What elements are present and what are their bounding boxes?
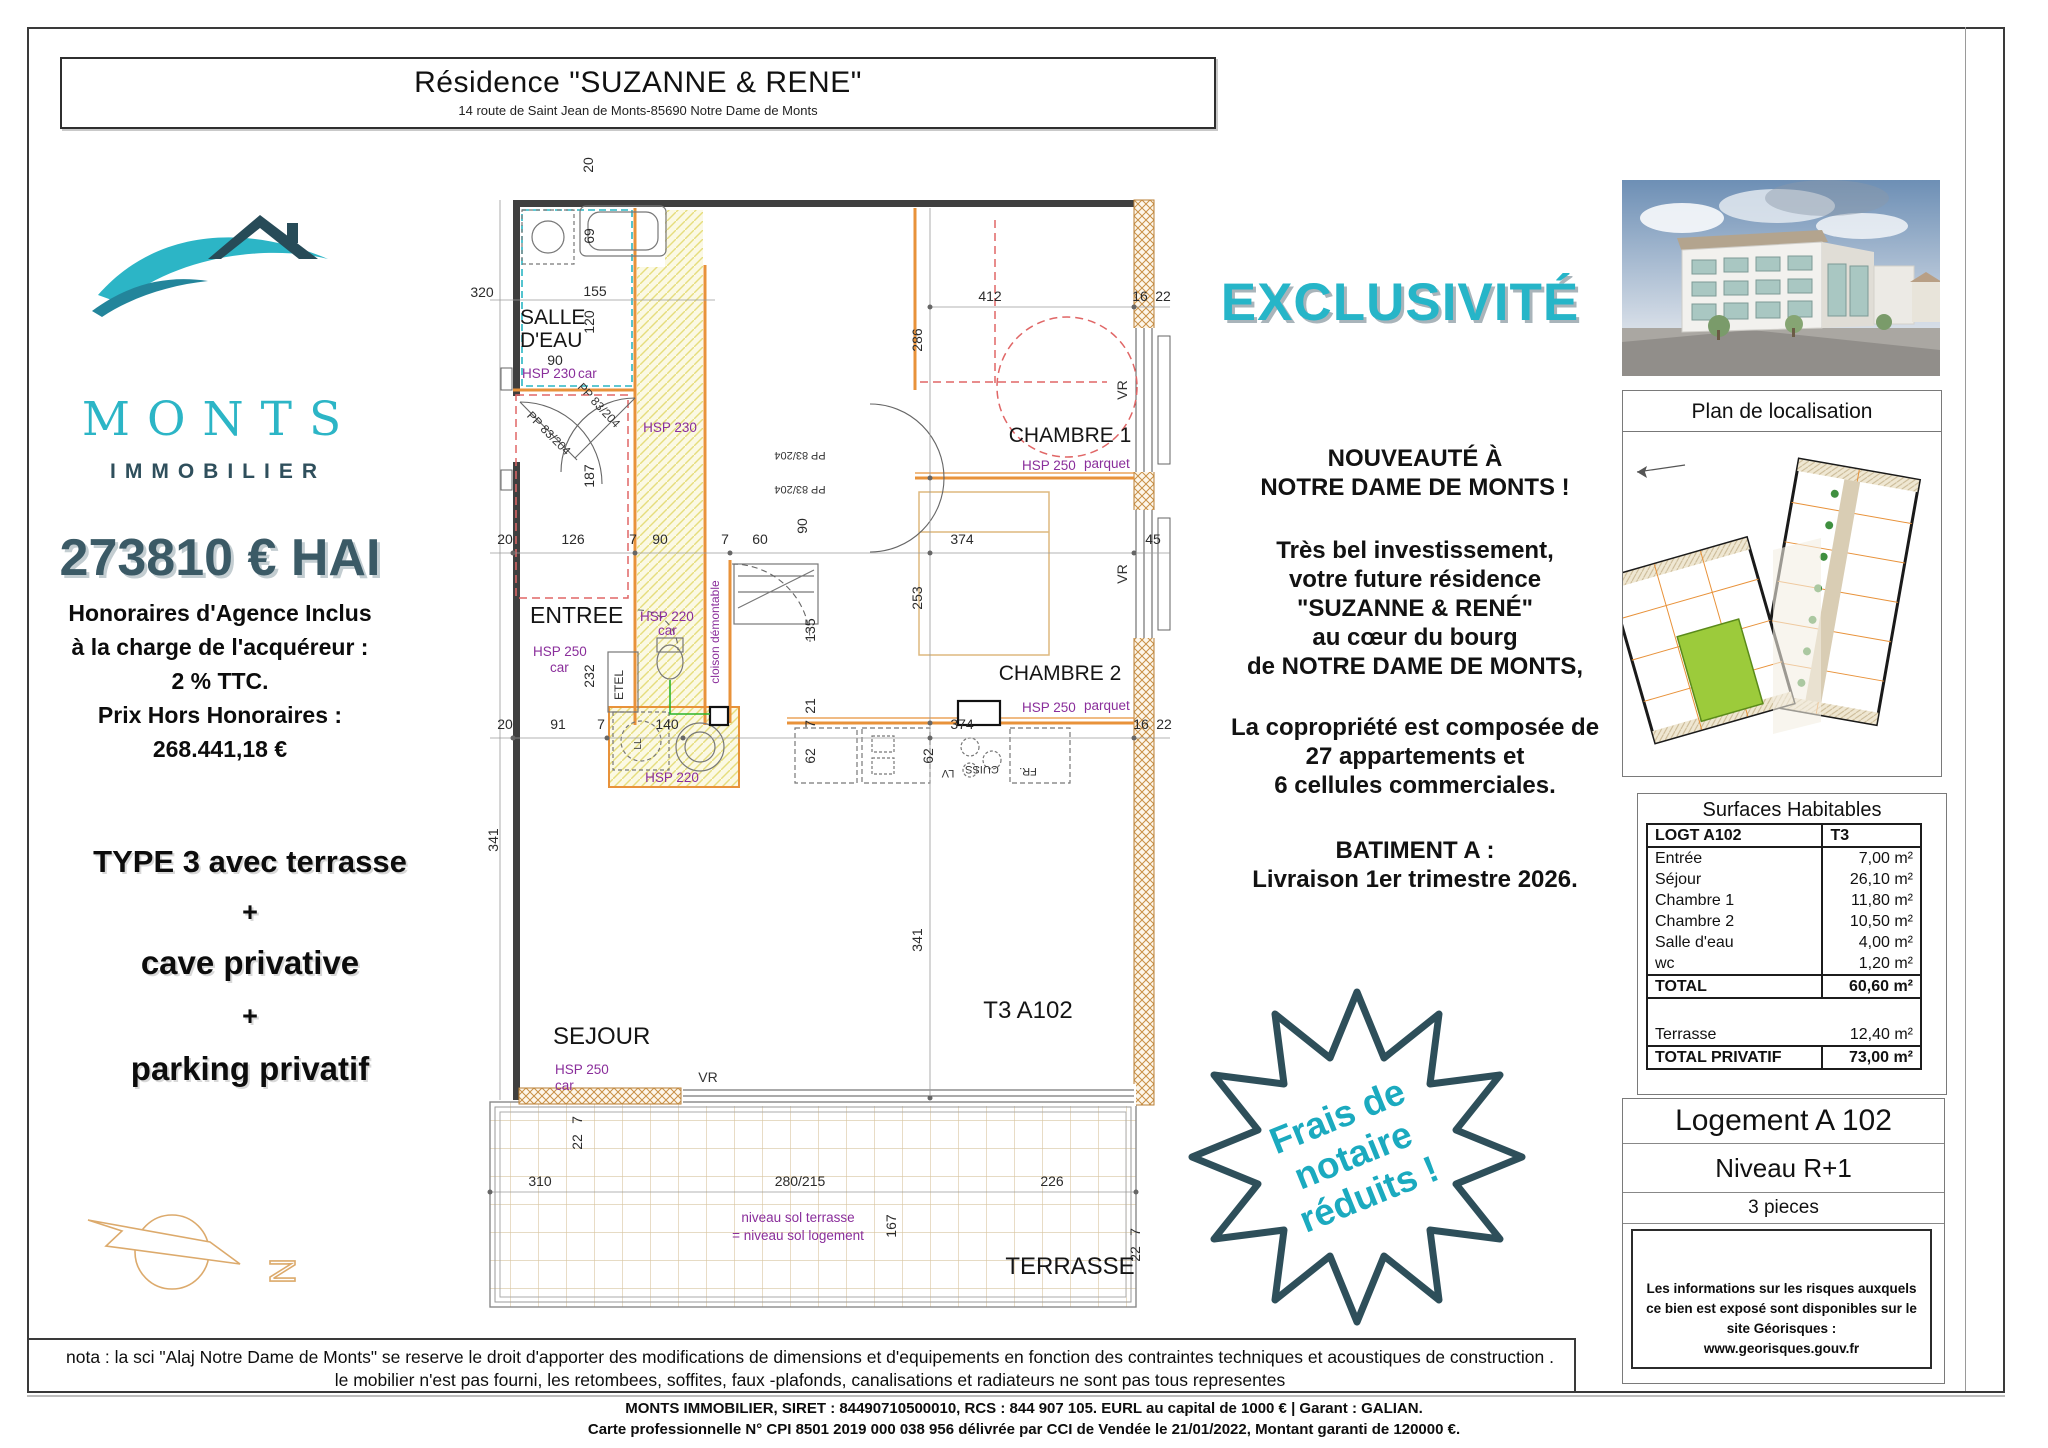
dim: 140 xyxy=(655,716,679,732)
risk-line: www.georisques.gouv.fr xyxy=(1633,1339,1930,1359)
surfaces-title: Surfaces Habitables xyxy=(1638,794,1946,822)
site-building-left xyxy=(1623,538,1794,743)
pricing-line: à la charge de l'acquéreur : xyxy=(35,634,405,661)
hsp-label: car xyxy=(555,1078,574,1093)
room-cell: Chambre 2 xyxy=(1647,911,1822,932)
promo-line: "SUZANNE & RENÉ" xyxy=(1195,594,1635,623)
promo-paragraph-3: La copropriété est composée de 27 appart… xyxy=(1195,713,1635,800)
promo-line: 6 cellules commerciales. xyxy=(1195,771,1635,800)
price: 273810 € HAI xyxy=(30,528,410,588)
compass-arrow-icon xyxy=(88,1220,240,1264)
dim: 21 xyxy=(802,698,818,714)
dim: 7 xyxy=(802,720,818,728)
unit-label: T3 A102 xyxy=(983,997,1072,1024)
dim: 91 xyxy=(550,716,566,732)
area-cell: 7,00 m² xyxy=(1822,847,1921,869)
dim: 320 xyxy=(470,284,494,300)
promo-line: 27 appartements et xyxy=(1195,742,1635,771)
promo-line: NOTRE DAME DE MONTS ! xyxy=(1195,473,1635,502)
dim: 22 xyxy=(1156,716,1172,732)
area-cell: 60,60 m² xyxy=(1822,975,1921,998)
promo-line: La copropriété est composée de xyxy=(1195,713,1635,742)
dim: 126 xyxy=(561,531,585,547)
hsp-label: HSP 230 xyxy=(643,420,697,435)
notary-badge: Frais de notaire réduits ! xyxy=(1185,985,1535,1335)
area-cell: 73,00 m² xyxy=(1822,1046,1921,1069)
dim: 22 xyxy=(569,1134,585,1150)
table-total-row: TOTAL 60,60 m² xyxy=(1647,975,1921,998)
brand-subtitle: IMMOBILIER xyxy=(55,460,375,484)
surfaces-table: LOGT A102 T3 Entrée 7,00 m² Séjour 26,10… xyxy=(1646,823,1922,1070)
col-header: T3 xyxy=(1822,824,1921,847)
area-cell: 11,80 m² xyxy=(1822,890,1921,911)
table-total-privatif-row: TOTAL PRIVATIF 73,00 m² xyxy=(1647,1046,1921,1069)
dim: 20 xyxy=(497,531,513,547)
door-label: PP 83/204 xyxy=(575,380,624,431)
promo-line: votre future résidence xyxy=(1195,565,1635,594)
table-row: Terrasse 12,40 m² xyxy=(1647,1024,1921,1046)
dim: 20 xyxy=(580,157,596,173)
area-cell: 10,50 m² xyxy=(1822,911,1921,932)
room-cell: wc xyxy=(1647,953,1822,975)
dim: 374 xyxy=(950,531,974,547)
lv-label: LV xyxy=(941,767,954,779)
room-label-salle-deau: D'EAU xyxy=(520,329,582,352)
dim: 226 xyxy=(1040,1173,1064,1189)
promo-line: Livraison 1er trimestre 2026. xyxy=(1195,865,1635,894)
pricing-line: Prix Hors Honoraires : xyxy=(35,702,405,729)
localisation-title: Plan de localisation xyxy=(1623,391,1941,432)
risk-line: ce bien est exposé sont disponibles sur … xyxy=(1633,1299,1930,1339)
vr-label: VR xyxy=(698,1069,717,1085)
nota-text: nota : la sci "Alaj Notre Dame de Monts"… xyxy=(50,1346,1570,1392)
company-info: MONTS IMMOBILIER, SIRET : 84490710500010… xyxy=(0,1400,2048,1417)
brand-name: MONTS xyxy=(55,392,375,447)
hsp-label: HSP 250 xyxy=(1022,700,1076,715)
table-spacer-row xyxy=(1647,998,1921,1024)
room-label-salle-deau: SALLE xyxy=(520,306,585,329)
hsp-label: car xyxy=(658,623,677,638)
hsp-label: parquet xyxy=(1084,456,1130,471)
table-header-row: LOGT A102 T3 xyxy=(1647,824,1921,847)
hsp-label: car xyxy=(578,366,597,381)
door-label: PP 83/204 xyxy=(774,483,825,495)
dim: 341 xyxy=(909,928,925,952)
table-row: Séjour 26,10 m² xyxy=(1647,869,1921,890)
room-cell: Séjour xyxy=(1647,869,1822,890)
dim: 60 xyxy=(752,531,768,547)
vr-label: VR xyxy=(1114,564,1130,583)
localisation-box: Plan de localisation xyxy=(1622,390,1942,777)
dim: 286 xyxy=(909,328,925,352)
promo-line: BATIMENT A : xyxy=(1195,836,1635,865)
risk-line: Les informations sur les risques auxquel… xyxy=(1633,1279,1930,1299)
page-border-right xyxy=(2003,27,2005,1393)
residence-address: 14 route de Saint Jean de Monts-85690 No… xyxy=(62,103,1214,118)
hsp-label: parquet xyxy=(1084,698,1130,713)
dim: 7 xyxy=(569,1116,585,1124)
page-border-left xyxy=(27,27,29,1393)
dim: 7 xyxy=(721,531,729,547)
dim: 16 xyxy=(1132,288,1148,304)
dim: 16 xyxy=(1133,716,1149,732)
pricing-line: 268.441,18 € xyxy=(35,736,405,763)
shower-zone xyxy=(522,210,632,386)
building-photo xyxy=(1622,180,1940,376)
nota-right-rule xyxy=(1574,1338,1576,1391)
dim: 7 xyxy=(629,531,637,547)
room-label-chambre1: CHAMBRE 1 xyxy=(1009,424,1132,447)
table-row: Salle d'eau 4,00 m² xyxy=(1647,932,1921,953)
north-compass: N xyxy=(80,1200,330,1310)
dim: 45 xyxy=(1145,531,1161,547)
room-cell: Salle d'eau xyxy=(1647,932,1822,953)
room-label-sejour: SEJOUR xyxy=(553,1023,650,1050)
fr-label: FR. xyxy=(1019,765,1037,777)
hsp-label: HSP 250 xyxy=(1022,458,1076,473)
area-cell: 26,10 m² xyxy=(1822,869,1921,890)
hsp-label: car xyxy=(550,660,569,675)
exclusivity-banner: EXCLUSIVITÉ xyxy=(1190,272,1610,333)
cuiss-label: CUISS xyxy=(965,763,999,775)
promo-line: au cœur du bourg xyxy=(1195,623,1635,652)
dim: 90 xyxy=(652,531,668,547)
flyer-page: Résidence "SUZANNE & RENE" 14 route de S… xyxy=(0,0,2048,1448)
cloison-label: cloison démontable xyxy=(708,580,722,684)
table-row: Chambre 1 11,80 m² xyxy=(1647,890,1921,911)
compass-n-label: N xyxy=(262,1258,303,1284)
unit-box: Logement A 102 Niveau R+1 3 pieces Les i… xyxy=(1622,1098,1945,1384)
dim: 310 xyxy=(528,1173,552,1189)
page-border-top xyxy=(27,27,2005,29)
dim: 90 xyxy=(794,518,810,534)
hsp-label: HSP 250 xyxy=(555,1062,609,1077)
dim: 135 xyxy=(802,618,818,642)
unit-level: Niveau R+1 xyxy=(1623,1144,1944,1193)
risk-info-box: Les informations sur les risques auxquel… xyxy=(1631,1229,1932,1369)
vr-label: VR xyxy=(1114,380,1130,399)
dim: 187 xyxy=(581,464,597,488)
room-label-chambre2: CHAMBRE 2 xyxy=(999,662,1122,685)
unit-name: Logement A 102 xyxy=(1623,1099,1944,1144)
hsp-label: HSP 220 xyxy=(645,770,699,785)
door-label: PP 83/204 xyxy=(774,449,825,461)
dim: 7 xyxy=(1127,1228,1143,1236)
site-plan xyxy=(1623,432,1939,774)
nota-divider xyxy=(27,1338,1576,1340)
dim: 69 xyxy=(581,228,597,244)
ll-label: LL xyxy=(633,738,644,750)
dim: 374 xyxy=(950,716,974,732)
promo-paragraph-1: NOUVEAUTÉ À NOTRE DAME DE MONTS ! xyxy=(1195,444,1635,502)
hsp-label: HSP 250 xyxy=(533,644,587,659)
dim: 232 xyxy=(581,664,597,688)
floor-plan: 20 320 155 90 69 120 187 412 16 22 286 2… xyxy=(370,140,1190,1325)
nota-line: le mobilier n'est pas fourni, les retomb… xyxy=(50,1369,1570,1392)
residence-title: Résidence "SUZANNE & RENE" xyxy=(62,66,1214,100)
promo-paragraph-4: BATIMENT A : Livraison 1er trimestre 202… xyxy=(1195,836,1635,894)
promo-line: Très bel investissement, xyxy=(1195,536,1635,565)
area-cell: 12,40 m² xyxy=(1822,1024,1921,1046)
pricing-line: 2 % TTC. xyxy=(35,668,405,695)
area-cell: 4,00 m² xyxy=(1822,932,1921,953)
table-row: Entrée 7,00 m² xyxy=(1647,847,1921,869)
niveau-label: = niveau sol logement xyxy=(732,1228,864,1243)
company-legal: Carte professionnelle N° CPI 8501 2019 0… xyxy=(0,1421,2048,1438)
hsp-label: HSP 220 xyxy=(640,609,694,624)
unit-rooms: 3 pieces xyxy=(1623,1193,1944,1224)
boiler-unit xyxy=(710,707,728,725)
room-cell: Terrasse xyxy=(1647,1024,1822,1046)
dim: 167 xyxy=(883,1214,899,1238)
room-cell: TOTAL xyxy=(1647,975,1822,998)
dim: 62 xyxy=(920,748,936,764)
niveau-label: niveau sol terrasse xyxy=(741,1210,854,1225)
inner-vertical-rule xyxy=(1965,27,1966,1391)
dim: 253 xyxy=(909,586,925,610)
header: Résidence "SUZANNE & RENE" 14 route de S… xyxy=(60,57,1216,129)
promo-line: NOUVEAUTÉ À xyxy=(1195,444,1635,473)
area-cell: 1,20 m² xyxy=(1822,953,1921,975)
logo-chimney-icon xyxy=(287,223,298,243)
nota-line: nota : la sci "Alaj Notre Dame de Monts"… xyxy=(50,1346,1570,1369)
col-header: LOGT A102 xyxy=(1647,824,1822,847)
agency-logo xyxy=(90,195,340,335)
pricing-line: Honoraires d'Agence Inclus xyxy=(35,600,405,627)
room-cell: TOTAL PRIVATIF xyxy=(1647,1046,1822,1069)
hsp-label: HSP 230 xyxy=(522,366,576,381)
dim: 22 xyxy=(1155,288,1171,304)
room-label-entree: ENTREE xyxy=(530,602,623,628)
dim: 341 xyxy=(485,828,501,852)
table-row: wc 1,20 m² xyxy=(1647,953,1921,975)
dim: 20 xyxy=(497,716,513,732)
dim: 280/215 xyxy=(775,1173,826,1189)
dim: 412 xyxy=(978,288,1002,304)
dim: 62 xyxy=(802,748,818,764)
etel-label: ETEL xyxy=(612,670,626,700)
surfaces-box: Surfaces Habitables LOGT A102 T3 Entrée … xyxy=(1637,793,1947,1095)
dim: 155 xyxy=(583,283,607,299)
room-cell: Chambre 1 xyxy=(1647,890,1822,911)
dim: 7 xyxy=(597,716,605,732)
room-cell: Entrée xyxy=(1647,847,1822,869)
promo-paragraph-2: Très bel investissement, votre future ré… xyxy=(1195,536,1635,681)
walls xyxy=(501,200,1170,1106)
room-label-terrasse: TERRASSE xyxy=(1005,1253,1134,1280)
promo-line: de NOTRE DAME DE MONTS, xyxy=(1195,652,1635,681)
table-row: Chambre 2 10,50 m² xyxy=(1647,911,1921,932)
